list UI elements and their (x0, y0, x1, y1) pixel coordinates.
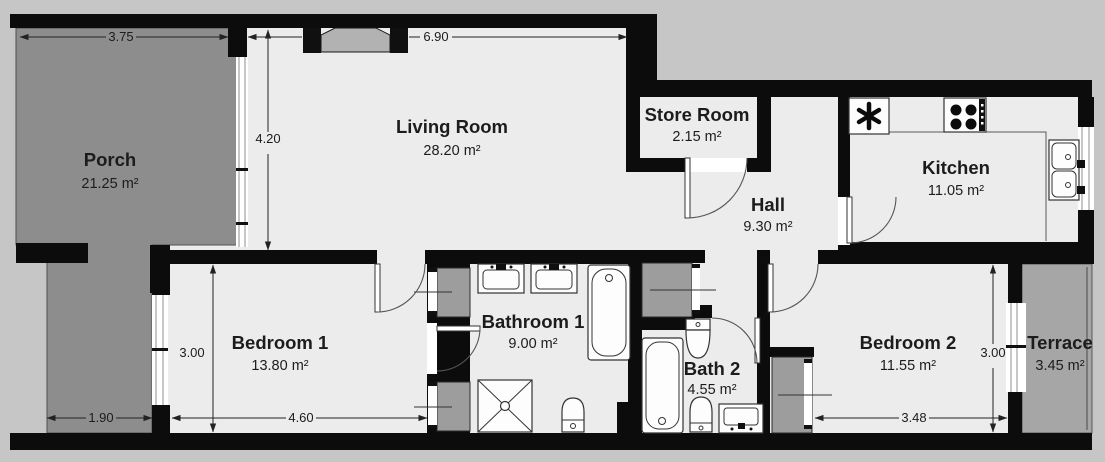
boiler-icon (849, 98, 889, 134)
chimney (303, 28, 408, 53)
svg-text:Hall: Hall (751, 194, 785, 215)
toilet-icon (562, 398, 584, 432)
dim-label: 4.60 (288, 410, 313, 425)
svg-text:2.15 m²: 2.15 m² (672, 129, 721, 145)
sink-icon (478, 264, 524, 293)
dim-label: 3.00 (179, 345, 204, 360)
dim-label: 6.90 (423, 29, 448, 44)
dim-label: 1.90 (88, 410, 113, 425)
svg-text:Bath 2: Bath 2 (684, 358, 741, 379)
stove-icon (944, 98, 986, 132)
floor-plan: 3.75 6.90 4.20 3.00 1.90 4.60 (0, 0, 1105, 462)
svg-text:Kitchen: Kitchen (922, 157, 990, 178)
kitchen-sink-icon (1049, 140, 1085, 200)
dim-label: 3.00 (980, 345, 1005, 360)
svg-text:9.30 m²: 9.30 m² (743, 219, 792, 235)
svg-text:11.55 m²: 11.55 m² (880, 358, 936, 374)
svg-text:4.55 m²: 4.55 m² (687, 382, 736, 398)
svg-text:Bedroom 1: Bedroom 1 (232, 332, 329, 353)
floors (150, 14, 1092, 450)
shower-icon (478, 380, 532, 432)
svg-text:Store Room: Store Room (645, 104, 750, 125)
svg-text:11.05 m²: 11.05 m² (928, 183, 984, 199)
svg-text:Terrace: Terrace (1027, 332, 1092, 353)
window-kitchen (1078, 127, 1094, 210)
dim-label: 4.20 (255, 131, 280, 146)
svg-text:Porch: Porch (84, 149, 136, 170)
svg-text:28.20 m²: 28.20 m² (423, 143, 480, 159)
svg-text:Bedroom 2: Bedroom 2 (860, 332, 957, 353)
svg-text:21.25 m²: 21.25 m² (81, 176, 138, 192)
svg-text:9.00 m²: 9.00 m² (508, 336, 557, 352)
sink-icon (719, 404, 763, 433)
window-bedroom-2 (1006, 303, 1026, 392)
window-porch-living (236, 57, 248, 247)
sink-icon (531, 264, 577, 293)
bidet-icon (690, 397, 712, 432)
svg-text:13.80 m²: 13.80 m² (251, 358, 308, 374)
bathtub-icon (588, 265, 630, 360)
svg-text:Bathroom 1: Bathroom 1 (482, 311, 585, 332)
window-bedroom-1 (152, 295, 168, 405)
floor-plan-svg: 3.75 6.90 4.20 3.00 1.90 4.60 (0, 0, 1105, 462)
bathtub-icon (642, 338, 683, 433)
room-label-bath-2: Bath 2 4.55 m² (684, 358, 741, 398)
svg-text:Living Room: Living Room (396, 116, 508, 137)
dim-label: 3.75 (108, 29, 133, 44)
toilet-icon (686, 319, 710, 358)
svg-text:3.45 m²: 3.45 m² (1035, 358, 1084, 374)
dim-label: 3.48 (901, 410, 926, 425)
